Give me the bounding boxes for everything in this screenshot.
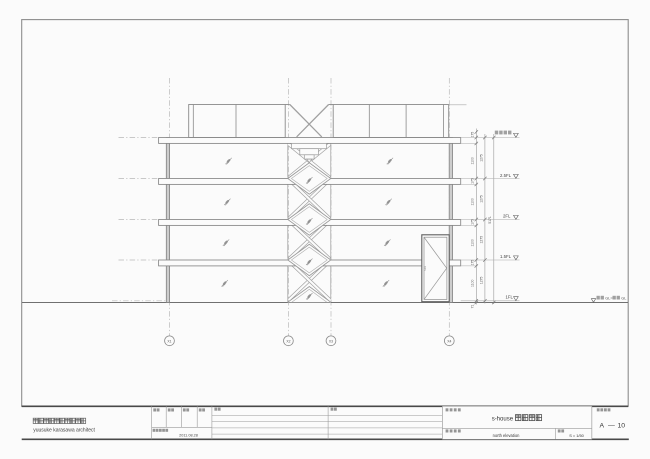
svg-text:2FL: 2FL xyxy=(503,213,511,218)
svg-text:SD1: SD1 xyxy=(423,265,427,271)
svg-text:S = 1/50: S = 1/50 xyxy=(569,433,584,438)
svg-text:1275: 1275 xyxy=(479,277,483,285)
svg-text:10: 10 xyxy=(618,422,626,429)
svg-text:71: 71 xyxy=(471,305,475,309)
svg-text:X1: X1 xyxy=(167,339,171,343)
svg-text:1100: 1100 xyxy=(471,198,475,205)
svg-text:X4: X4 xyxy=(447,339,451,343)
svg-text:2011.08.28: 2011.08.28 xyxy=(179,433,198,437)
svg-text:175: 175 xyxy=(471,178,475,184)
svg-text:175: 175 xyxy=(471,260,475,266)
svg-text:1275: 1275 xyxy=(479,236,483,244)
svg-text:5171: 5171 xyxy=(488,216,492,224)
svg-text:2.5FL: 2.5FL xyxy=(500,173,512,178)
svg-text:175: 175 xyxy=(471,132,475,138)
svg-text:1100: 1100 xyxy=(471,157,475,164)
svg-text:X3: X3 xyxy=(329,339,333,343)
svg-text:—: — xyxy=(608,422,615,429)
svg-text:north elevation: north elevation xyxy=(493,433,521,438)
svg-text:X2: X2 xyxy=(286,339,290,343)
svg-text:1.5FL: 1.5FL xyxy=(500,254,512,259)
svg-text:175: 175 xyxy=(471,219,475,225)
svg-text:1FL: 1FL xyxy=(506,295,514,300)
svg-text:1275: 1275 xyxy=(479,154,483,162)
svg-text:GL: GL xyxy=(621,297,626,301)
svg-text:1275: 1275 xyxy=(479,195,483,203)
svg-text:GL=: GL= xyxy=(605,297,613,301)
svg-text:1100: 1100 xyxy=(471,280,475,287)
svg-text:A: A xyxy=(600,422,605,429)
svg-text:1100: 1100 xyxy=(471,239,475,246)
svg-text:yuusuke karasawa architect: yuusuke karasawa architect xyxy=(33,428,95,434)
svg-text:s-house: s-house xyxy=(492,416,514,422)
